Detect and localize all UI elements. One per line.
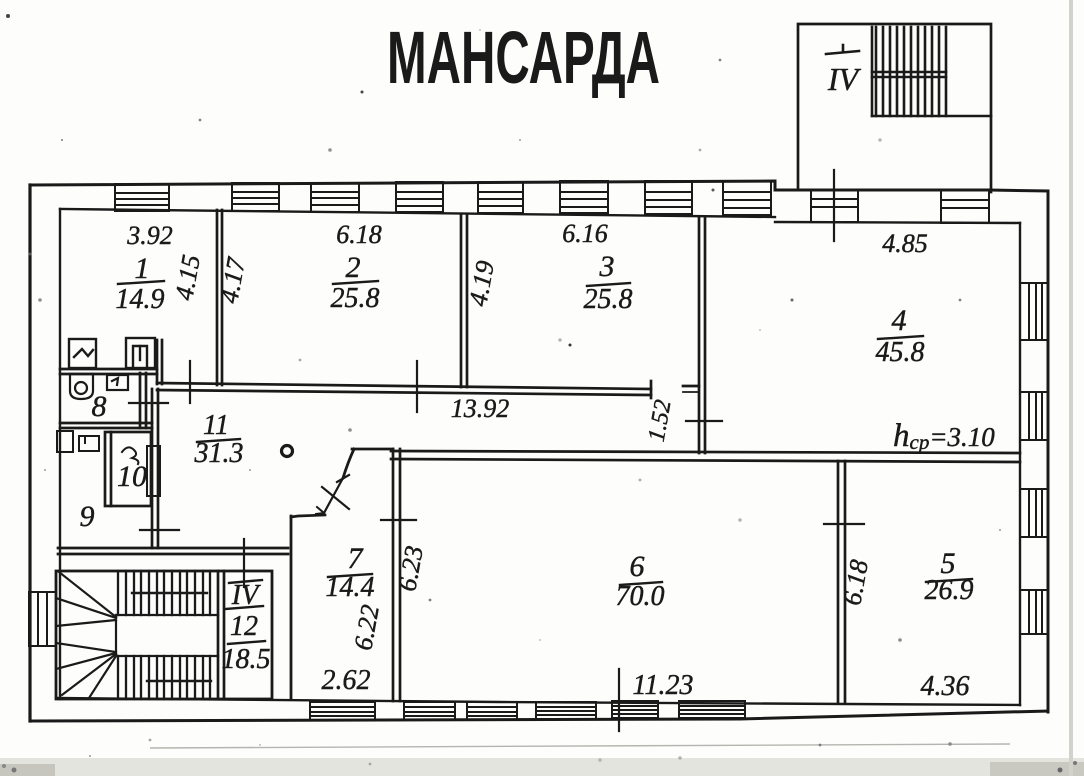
svg-text:11: 11 xyxy=(203,410,229,441)
svg-text:11.23: 11.23 xyxy=(633,670,694,701)
svg-text:4.85: 4.85 xyxy=(882,229,928,258)
svg-text:31.3: 31.3 xyxy=(194,438,244,469)
svg-text:4: 4 xyxy=(892,304,907,337)
svg-text:13.92: 13.92 xyxy=(451,394,510,423)
svg-text:18.5: 18.5 xyxy=(222,644,271,675)
svg-text:4.36: 4.36 xyxy=(921,671,970,702)
svg-text:25.8: 25.8 xyxy=(584,284,633,315)
svg-text:45.8: 45.8 xyxy=(876,337,925,368)
svg-text:14.9: 14.9 xyxy=(116,284,165,315)
svg-text:6: 6 xyxy=(630,550,645,583)
svg-text:8: 8 xyxy=(92,390,107,423)
svg-text:10: 10 xyxy=(117,460,147,493)
svg-text:3.92: 3.92 xyxy=(126,221,173,250)
svg-text:9: 9 xyxy=(80,500,95,533)
svg-text:12: 12 xyxy=(230,611,258,642)
svg-text:25.8: 25.8 xyxy=(331,283,380,314)
svg-text:26.9: 26.9 xyxy=(925,575,974,606)
svg-text:IV: IV xyxy=(231,580,261,611)
svg-text:hср=3.10: hср=3.10 xyxy=(893,418,995,454)
svg-text:14.4: 14.4 xyxy=(326,572,375,603)
svg-text:2.62: 2.62 xyxy=(322,665,371,696)
svg-text:7: 7 xyxy=(348,542,365,575)
svg-text:70.0: 70.0 xyxy=(616,581,665,612)
svg-text:1: 1 xyxy=(135,252,150,285)
svg-text:МАНСАРДА: МАНСАРДА xyxy=(387,16,660,99)
svg-text:6.18: 6.18 xyxy=(336,220,382,249)
svg-text:2: 2 xyxy=(346,251,361,284)
svg-text:IV: IV xyxy=(827,61,862,97)
svg-text:6.16: 6.16 xyxy=(562,219,608,248)
svg-text:3: 3 xyxy=(599,250,615,283)
